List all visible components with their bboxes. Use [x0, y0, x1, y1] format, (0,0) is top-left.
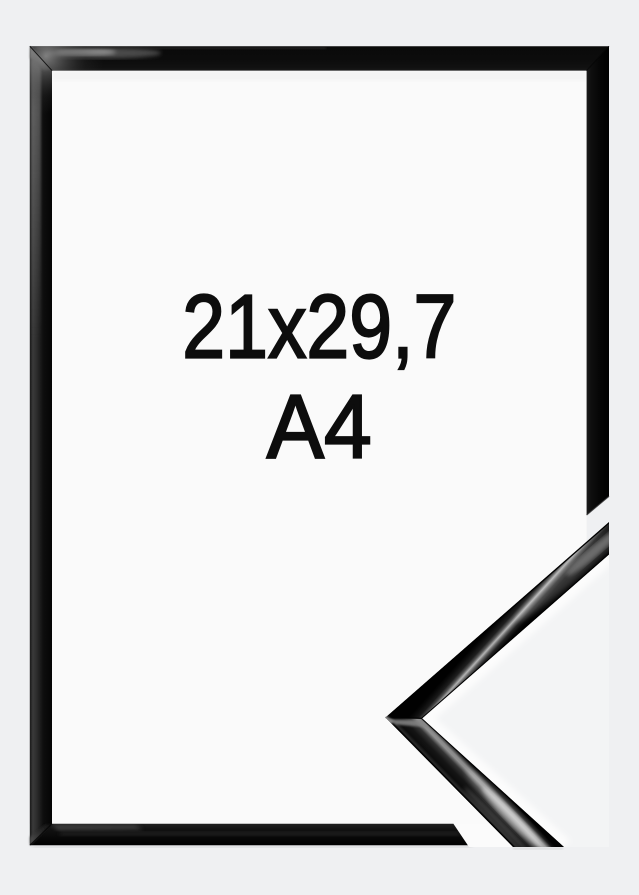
svg-text:A4: A4 — [267, 378, 372, 478]
svg-text:21x29,7: 21x29,7 — [182, 278, 456, 378]
